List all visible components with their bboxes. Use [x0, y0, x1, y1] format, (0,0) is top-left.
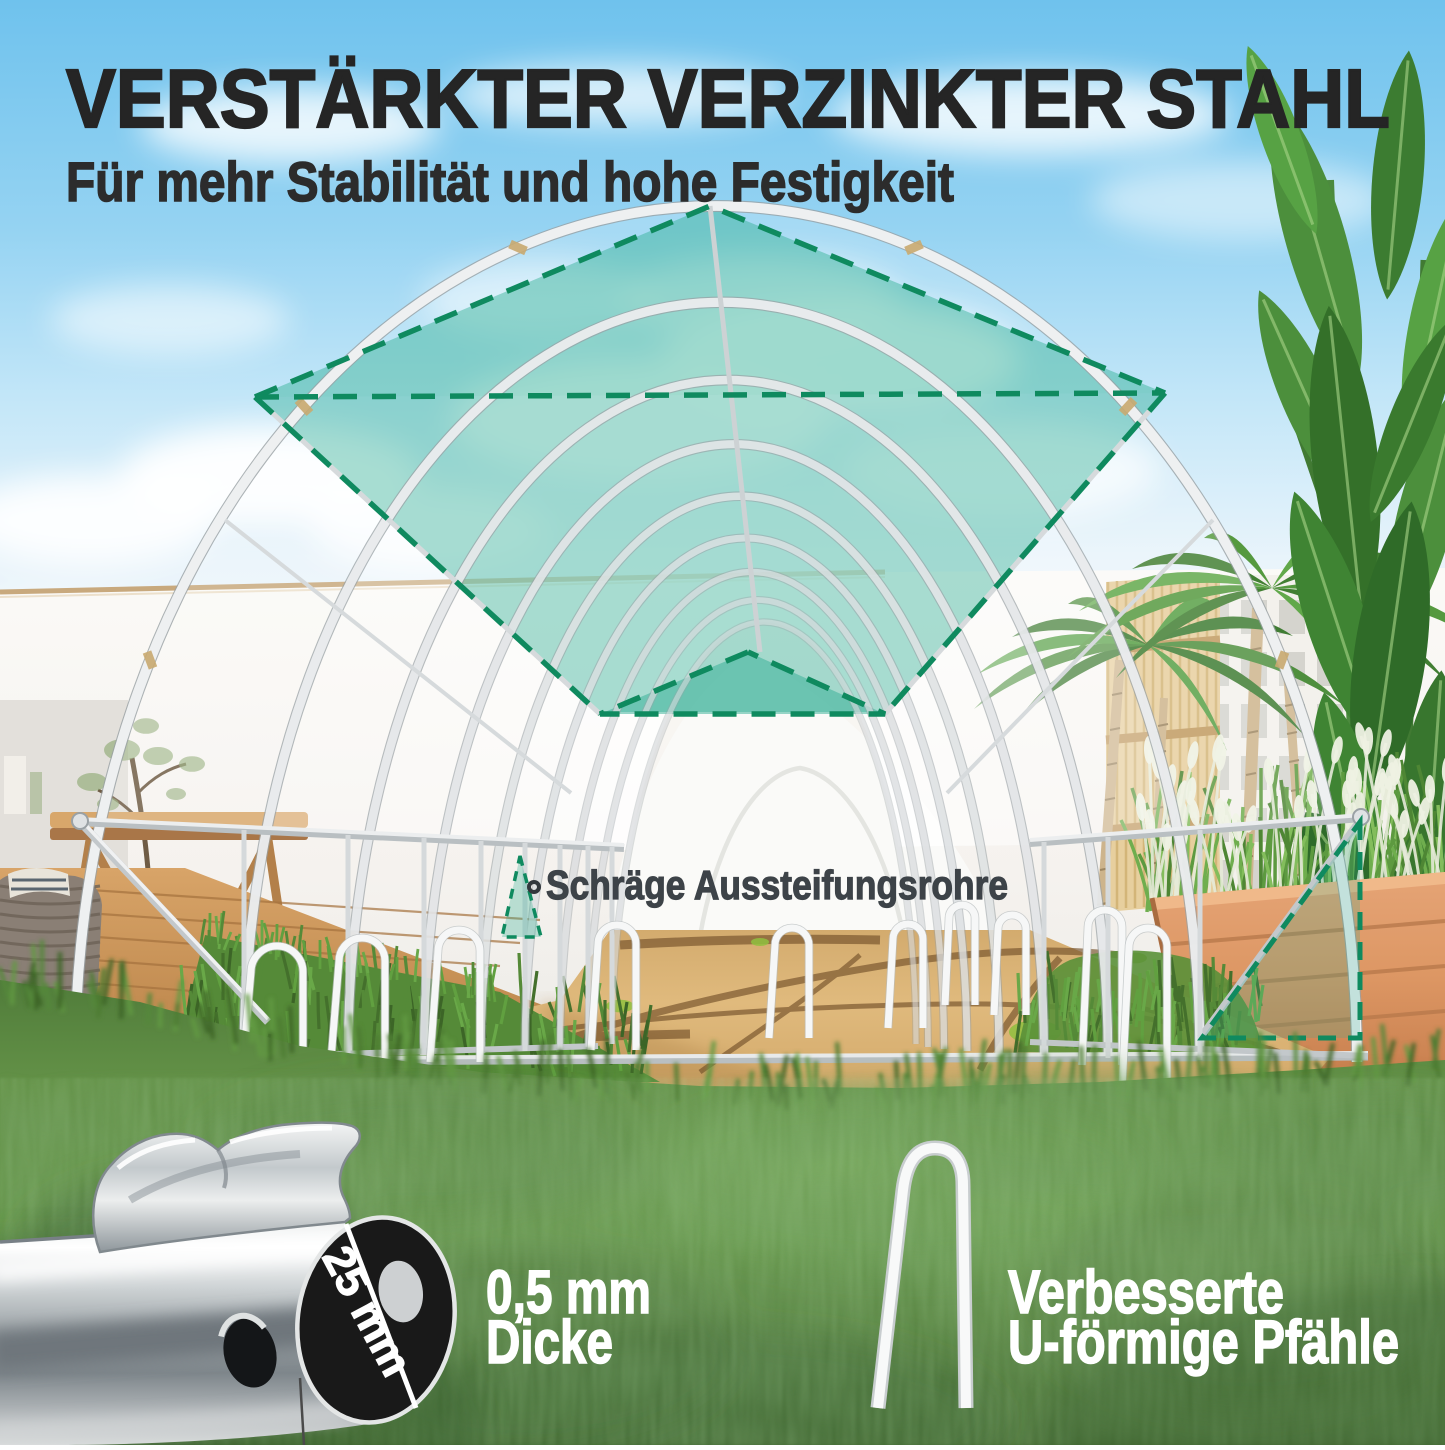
svg-text:Für mehr Stabilität und hohe F: Für mehr Stabilität und hohe Festigkeit	[66, 150, 954, 213]
svg-text:Schräge Aussteifungsrohre: Schräge Aussteifungsrohre	[546, 862, 1008, 908]
svg-text:VERSTÄRKTER VERZINKTER STAHL: VERSTÄRKTER VERZINKTER STAHL	[66, 52, 1390, 145]
svg-text:Dicke: Dicke	[486, 1308, 613, 1376]
svg-text:U-förmige Pfähle: U-förmige Pfähle	[1008, 1308, 1399, 1376]
